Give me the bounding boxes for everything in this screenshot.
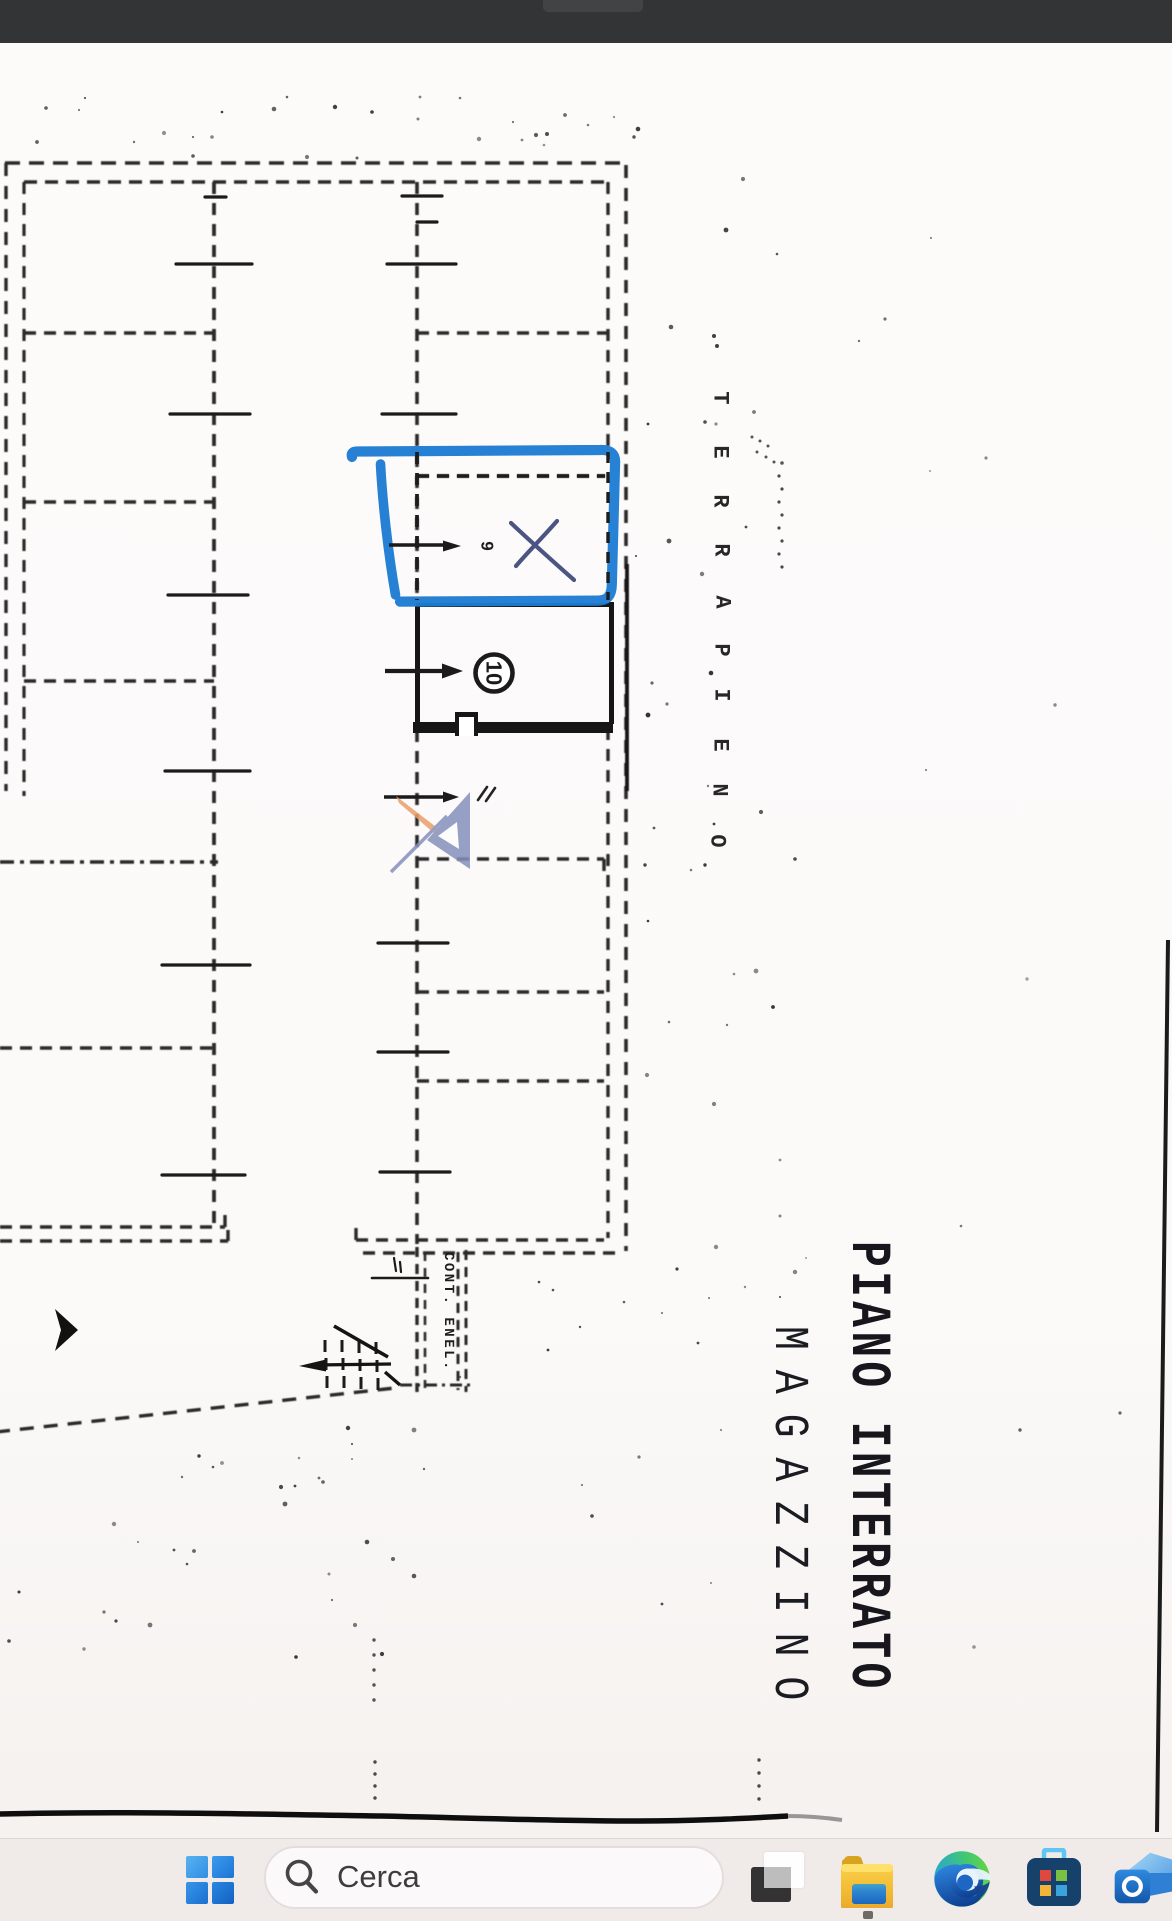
svg-text:10: 10 <box>482 661 507 685</box>
svg-text:CONT. ENEL.: CONT. ENEL. <box>440 1252 456 1372</box>
svg-text:I: I <box>709 688 734 701</box>
svg-text:A: A <box>710 595 735 609</box>
svg-text:E: E <box>708 445 733 458</box>
svg-text:9: 9 <box>478 541 497 550</box>
svg-text:PIANO INTERRATO: PIANO INTERRATO <box>836 1241 901 1693</box>
svg-text:MAGAZZINO: MAGAZZINO <box>760 1326 815 1720</box>
svg-text:O: O <box>705 834 730 847</box>
svg-text:R: R <box>709 543 734 557</box>
svg-text:R: R <box>708 494 733 508</box>
svg-text:T: T <box>708 391 733 404</box>
svg-text:E: E <box>708 738 733 751</box>
svg-text:P: P <box>709 643 734 656</box>
svg-text:N: N <box>707 783 732 796</box>
